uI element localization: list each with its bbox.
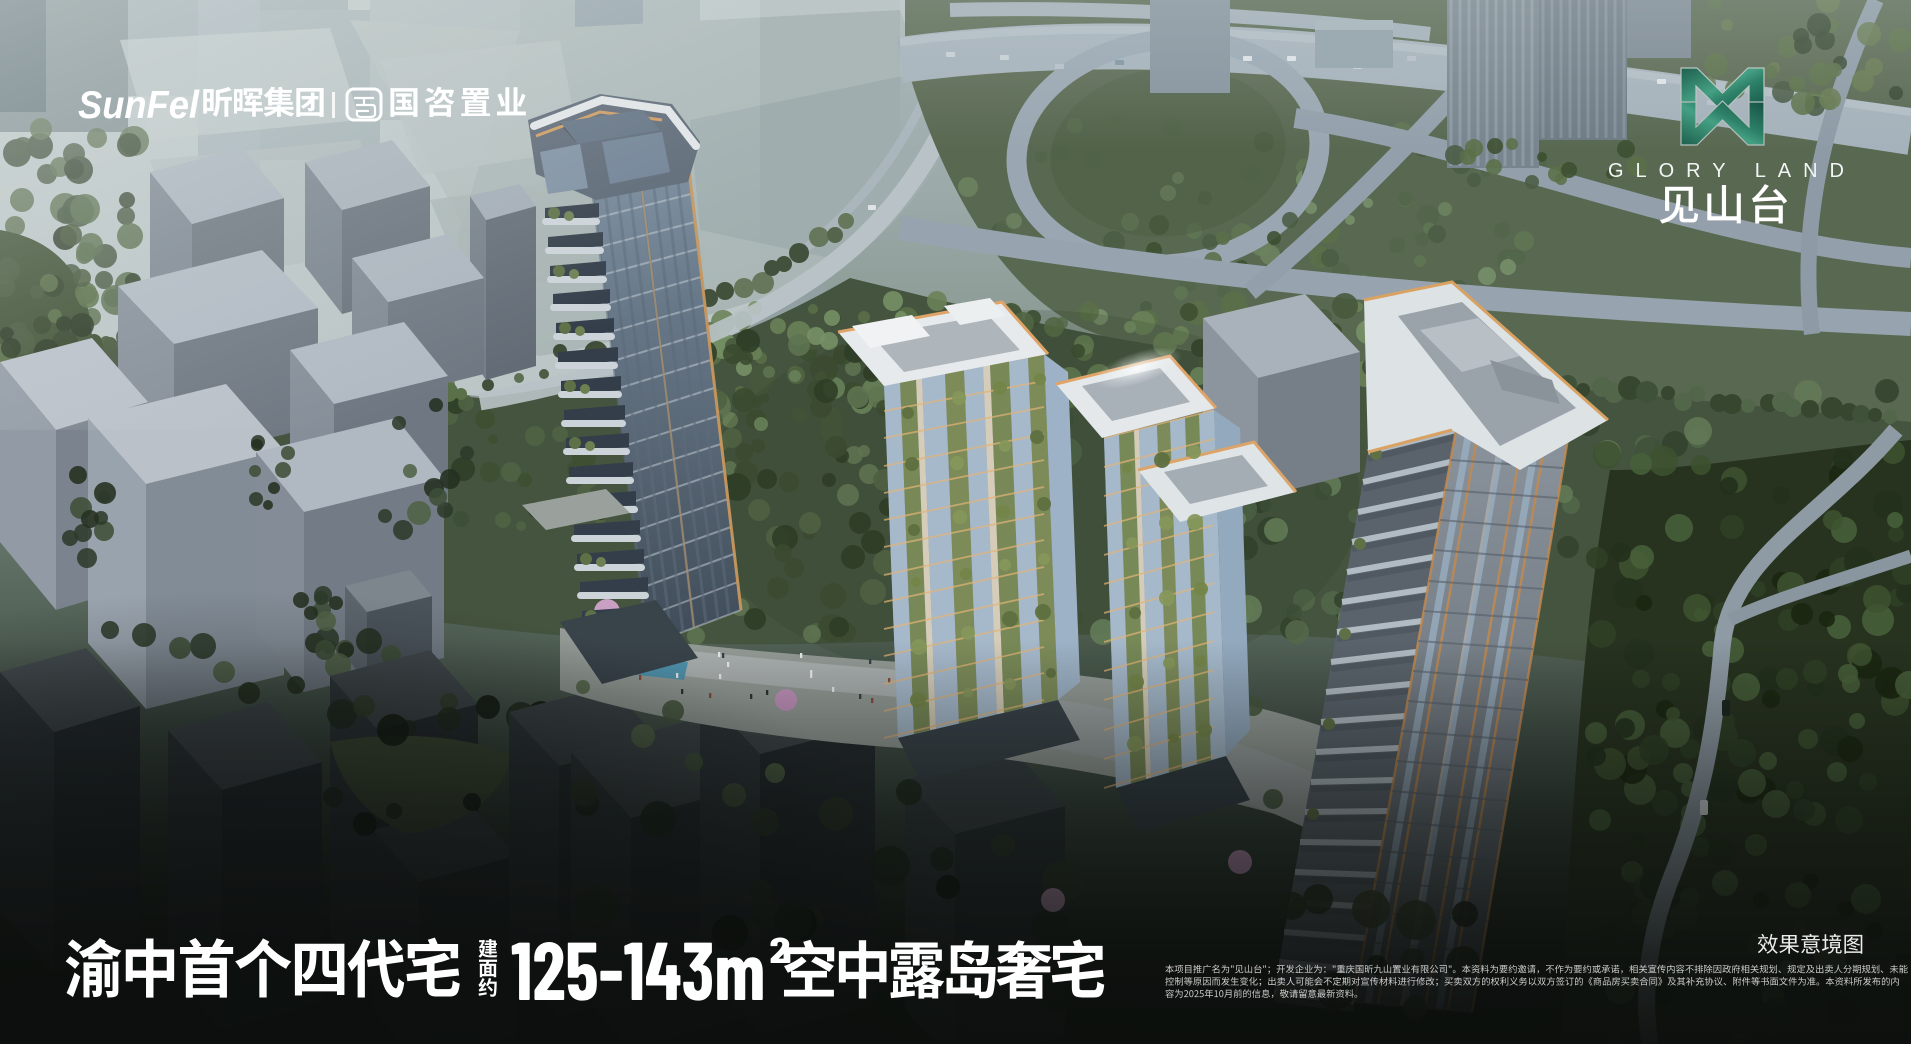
svg-text:SunFel: SunFel bbox=[78, 84, 200, 127]
svg-text:GLORY LAND: GLORY LAND bbox=[1608, 160, 1856, 182]
